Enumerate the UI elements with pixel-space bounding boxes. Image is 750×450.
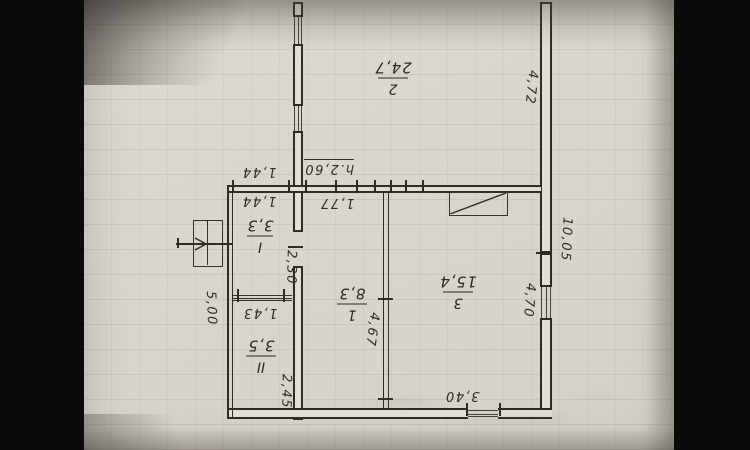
dim-1-77: 1,77: [315, 195, 359, 210]
wall-exterior-bottom: [498, 408, 552, 419]
wall-pier: [293, 44, 303, 106]
room-area: 15,4: [439, 273, 476, 291]
dim-1-43: 1,43: [238, 305, 282, 320]
dim-tick: [536, 252, 551, 254]
dim-tick: [374, 180, 376, 193]
dim-1-44-outer: 1,44: [237, 164, 281, 179]
room-label-2: 2 24,7: [358, 58, 428, 100]
entrance-arrow-icon: [193, 236, 209, 252]
dim-tick: [283, 289, 285, 302]
stove-diagonal: [450, 193, 506, 214]
dim-tick: [390, 180, 392, 193]
dim-2-30: 2,30: [283, 245, 299, 289]
dim-1-44-inner: 1,44: [237, 193, 281, 208]
window-right: [541, 287, 551, 318]
dim-tick: [237, 289, 239, 302]
dim-tick: [177, 238, 179, 248]
dim-tick: [288, 180, 290, 193]
dim-tick: [356, 180, 358, 193]
dim-tick: [335, 180, 337, 193]
room-area: 24,7: [374, 59, 411, 77]
black-bar-left: [0, 0, 84, 450]
window: [294, 17, 302, 44]
dim-tick: [305, 180, 307, 193]
room-area: 3,5: [248, 337, 275, 355]
wall-pier: [293, 131, 303, 232]
floor-plan-photo: 2 24,7 1 8,3 3 15,4 I 3,3 II 3,5 4,72 10…: [0, 0, 750, 450]
room-number: 1: [337, 304, 368, 323]
black-bar-right: [674, 0, 750, 450]
room-number: II: [246, 356, 276, 375]
wall-exterior-bottom: [227, 408, 468, 419]
wall-exterior-right: [540, 2, 552, 253]
dim-tick: [499, 403, 501, 416]
room-number: 2: [378, 78, 409, 97]
dim-tick: [232, 180, 234, 193]
stove-symbol: [449, 192, 508, 216]
room-label-3: 3 15,4: [423, 272, 493, 314]
dim-10-05: 10,05: [557, 215, 574, 264]
window: [294, 106, 302, 131]
room-number: 3: [443, 292, 474, 311]
dim-tick: [378, 398, 393, 400]
dim-3-40: 3,40: [440, 388, 484, 403]
room-area: 8,3: [339, 285, 366, 303]
window-bottom: [468, 410, 498, 417]
height-note-text: h.2,60: [304, 159, 354, 176]
dim-5-00: 5,00: [203, 286, 220, 330]
wall-pier: [540, 253, 552, 287]
dim-h-2-60: h.2,60: [299, 161, 359, 176]
room-number: I: [247, 236, 273, 255]
dim-tick: [422, 180, 424, 193]
room-area: 3,3: [247, 217, 274, 235]
dim-tick: [405, 180, 407, 193]
dim-tick: [466, 403, 468, 416]
dim-2-45: 2,45: [278, 369, 294, 413]
wall-pier: [293, 2, 303, 17]
wall-pier: [540, 318, 552, 410]
